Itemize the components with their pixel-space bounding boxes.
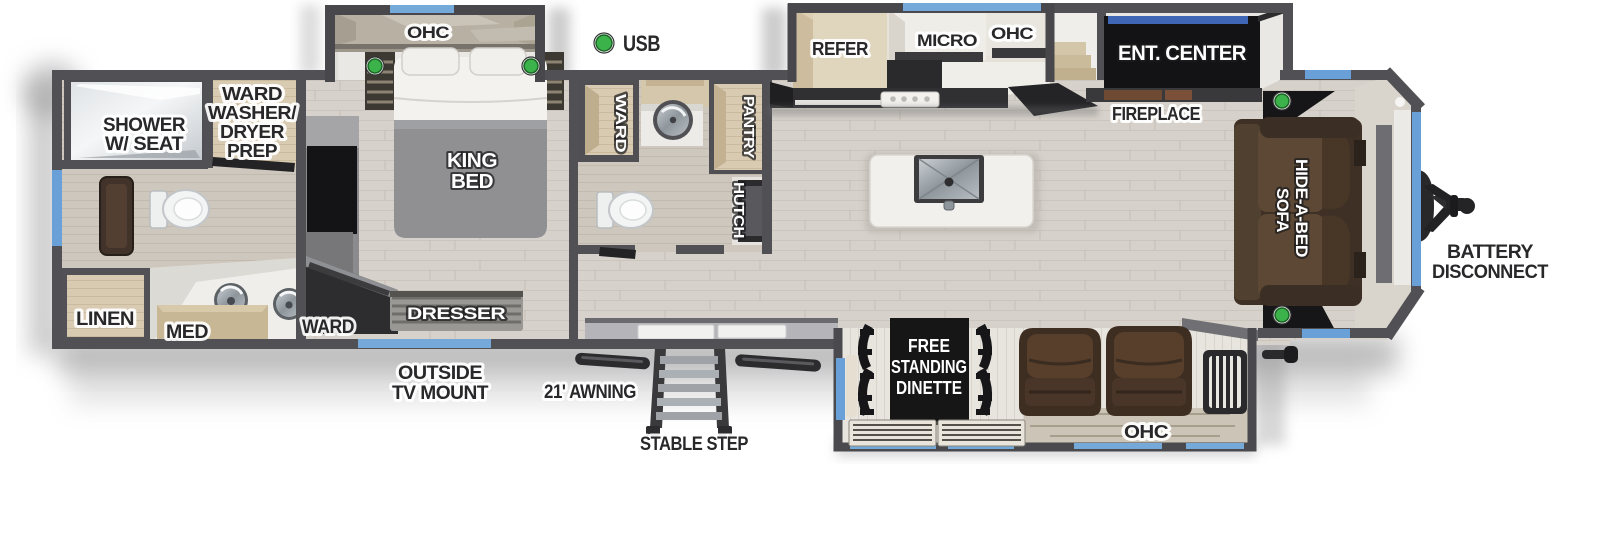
svg-text:DINETTE: DINETTE	[896, 378, 962, 398]
svg-text:FIREPLACE: FIREPLACE	[1112, 104, 1200, 124]
svg-text:BED: BED	[451, 171, 493, 193]
svg-text:WARD: WARD	[612, 94, 629, 153]
svg-text:MICRO: MICRO	[917, 31, 977, 50]
svg-text:SOFA: SOFA	[1273, 188, 1292, 232]
svg-text:STABLE STEP: STABLE STEP	[640, 434, 749, 455]
svg-text:PANTRY: PANTRY	[740, 96, 757, 159]
svg-text:OUTSIDE: OUTSIDE	[398, 363, 482, 384]
svg-text:LINEN: LINEN	[76, 309, 134, 330]
svg-text:HIDE-A-BED: HIDE-A-BED	[1292, 159, 1311, 257]
svg-text:USB: USB	[623, 31, 660, 56]
svg-text:WASHER/: WASHER/	[208, 103, 297, 123]
svg-text:BATTERY: BATTERY	[1447, 242, 1534, 263]
svg-text:WARD: WARD	[222, 84, 283, 104]
svg-text:WARD: WARD	[302, 317, 354, 338]
svg-text:DRESSER: DRESSER	[407, 304, 505, 323]
svg-text:REFER: REFER	[812, 39, 868, 59]
svg-text:DRYER: DRYER	[220, 122, 285, 142]
svg-text:DISCONNECT: DISCONNECT	[1432, 262, 1549, 283]
svg-text:OHC: OHC	[407, 23, 449, 42]
svg-text:KING: KING	[447, 150, 497, 172]
svg-text:W/ SEAT: W/ SEAT	[105, 134, 184, 155]
svg-text:21' AWNING: 21' AWNING	[544, 382, 636, 403]
svg-text:FREE: FREE	[908, 336, 950, 356]
svg-text:ENT. CENTER: ENT. CENTER	[1118, 42, 1246, 65]
svg-text:TV MOUNT: TV MOUNT	[392, 383, 489, 404]
svg-text:SHOWER: SHOWER	[103, 115, 186, 136]
svg-text:MED: MED	[166, 322, 208, 343]
svg-text:HUTCH: HUTCH	[730, 182, 747, 238]
svg-text:OHC: OHC	[991, 24, 1033, 43]
svg-text:STANDING: STANDING	[891, 357, 967, 377]
svg-text:OHC: OHC	[1124, 422, 1169, 442]
svg-text:PREP: PREP	[227, 141, 278, 161]
